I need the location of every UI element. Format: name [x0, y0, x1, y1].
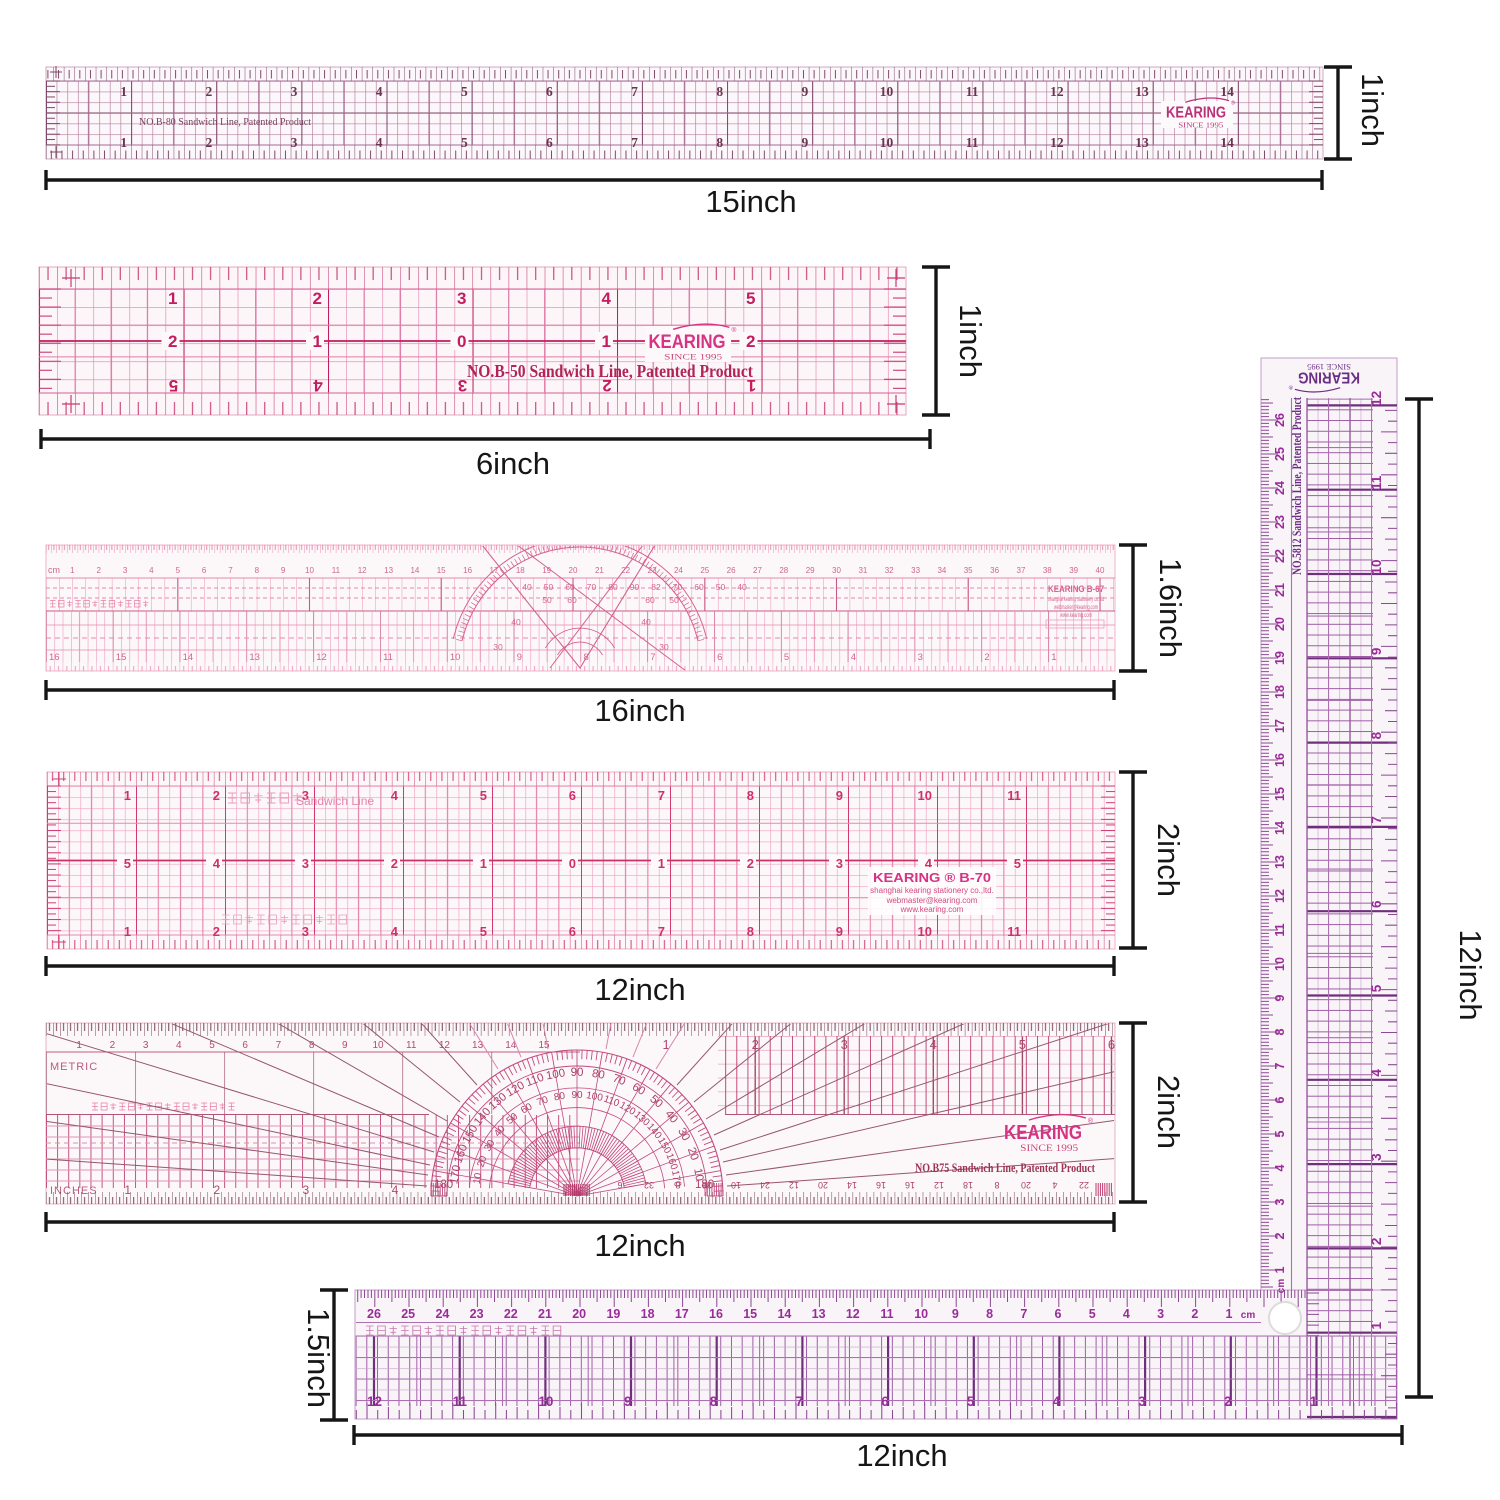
svg-text:10: 10 — [918, 788, 932, 803]
svg-text:90: 90 — [571, 1090, 583, 1101]
svg-text:15inch: 15inch — [705, 184, 796, 219]
svg-text:3: 3 — [302, 856, 309, 871]
svg-text:18: 18 — [963, 1180, 973, 1190]
svg-text:2: 2 — [206, 135, 213, 150]
svg-text:2inch: 2inch — [1151, 823, 1186, 897]
svg-text:6: 6 — [881, 1394, 889, 1409]
svg-text:20: 20 — [572, 1307, 586, 1321]
svg-text:3: 3 — [836, 856, 843, 871]
svg-text:6: 6 — [569, 788, 576, 803]
svg-text:13: 13 — [812, 1307, 826, 1321]
svg-text:40: 40 — [522, 582, 532, 592]
svg-text:1: 1 — [313, 332, 322, 351]
svg-text:12: 12 — [1369, 391, 1384, 406]
svg-text:11: 11 — [406, 1040, 417, 1051]
svg-text:39: 39 — [1069, 566, 1078, 575]
svg-text:25: 25 — [401, 1307, 415, 1321]
svg-text:2: 2 — [1191, 1307, 1198, 1321]
svg-text:4: 4 — [391, 788, 399, 803]
svg-text:40: 40 — [641, 617, 651, 627]
svg-text:10: 10 — [1369, 559, 1384, 574]
svg-text:20: 20 — [569, 566, 578, 575]
svg-text:KEARING ® B-70: KEARING ® B-70 — [873, 870, 991, 885]
svg-text:5: 5 — [1014, 856, 1021, 871]
svg-text:10: 10 — [731, 1180, 741, 1190]
svg-text:8: 8 — [1273, 1028, 1287, 1035]
svg-text:4: 4 — [602, 289, 612, 308]
svg-text:NO.5812 Sandwich Line, Patente: NO.5812 Sandwich Line, Patented Product — [1290, 396, 1304, 575]
svg-text:webmaster@kearing.com: webmaster@kearing.com — [1053, 604, 1098, 611]
svg-text:6inch: 6inch — [476, 446, 550, 481]
svg-text:16: 16 — [876, 1180, 886, 1190]
svg-text:SINCE 1995: SINCE 1995 — [1178, 120, 1223, 129]
svg-text:0: 0 — [457, 332, 466, 351]
svg-text:12: 12 — [1050, 84, 1064, 99]
svg-text:13: 13 — [1135, 84, 1149, 99]
svg-text:60: 60 — [645, 595, 655, 605]
svg-text:28: 28 — [779, 566, 788, 575]
svg-text:3: 3 — [123, 566, 128, 575]
svg-text:9: 9 — [342, 1040, 348, 1051]
svg-text:80: 80 — [591, 1068, 606, 1082]
svg-text:26: 26 — [1273, 413, 1287, 427]
svg-text:3: 3 — [291, 84, 298, 99]
svg-text:6: 6 — [242, 1040, 248, 1051]
svg-text:12inch: 12inch — [1453, 929, 1488, 1020]
svg-text:9: 9 — [517, 652, 522, 663]
svg-text:26: 26 — [727, 566, 736, 575]
svg-text:2: 2 — [746, 332, 755, 351]
svg-text:21: 21 — [538, 1307, 552, 1321]
svg-text:3: 3 — [458, 376, 467, 395]
svg-text:®: ® — [1088, 1117, 1094, 1125]
svg-text:5: 5 — [176, 566, 181, 575]
svg-text:29: 29 — [806, 566, 815, 575]
svg-text:13: 13 — [1135, 135, 1149, 150]
svg-text:2inch: 2inch — [1151, 1075, 1186, 1149]
svg-text:40: 40 — [511, 617, 521, 627]
svg-text:1: 1 — [1369, 1321, 1384, 1329]
svg-text:13: 13 — [249, 652, 260, 663]
svg-text:3: 3 — [1369, 1153, 1384, 1161]
svg-text:5: 5 — [461, 84, 468, 99]
svg-text:9: 9 — [624, 1394, 632, 1409]
svg-text:8: 8 — [994, 1180, 999, 1190]
svg-text:9: 9 — [1369, 648, 1384, 656]
svg-text:7: 7 — [228, 566, 233, 575]
svg-text:14: 14 — [847, 1180, 857, 1190]
svg-text:20: 20 — [1273, 617, 1287, 631]
svg-text:22: 22 — [1273, 549, 1287, 563]
svg-text:9: 9 — [836, 788, 843, 803]
svg-text:30: 30 — [659, 642, 669, 652]
svg-text:1: 1 — [120, 84, 127, 99]
svg-text:2: 2 — [213, 924, 220, 939]
svg-text:3: 3 — [457, 289, 466, 308]
svg-text:10: 10 — [372, 1040, 384, 1051]
svg-text:7: 7 — [1369, 816, 1384, 824]
svg-text:7: 7 — [1020, 1307, 1027, 1321]
svg-text:11: 11 — [383, 652, 393, 663]
svg-text:NO.B-80 Sandwich Line, Patente: NO.B-80 Sandwich Line, Patented Product — [139, 116, 311, 128]
svg-text:6: 6 — [1055, 1307, 1062, 1321]
svg-text:5: 5 — [124, 856, 131, 871]
svg-text:4: 4 — [391, 924, 399, 939]
svg-text:23: 23 — [470, 1307, 484, 1321]
svg-text:1inch: 1inch — [1355, 73, 1390, 147]
svg-text:KEARING B-67: KEARING B-67 — [1048, 584, 1104, 594]
svg-text:10: 10 — [918, 924, 932, 939]
svg-text:cm: cm — [48, 565, 60, 575]
svg-text:5: 5 — [1369, 984, 1384, 992]
svg-text:7: 7 — [650, 652, 655, 663]
svg-text:38: 38 — [1043, 566, 1052, 575]
svg-text:www.kearing.com: www.kearing.com — [900, 905, 964, 914]
svg-text:70: 70 — [587, 582, 597, 592]
svg-text:11: 11 — [453, 1394, 468, 1409]
svg-text:®: ® — [731, 326, 736, 334]
svg-text:60: 60 — [565, 582, 575, 592]
svg-text:60: 60 — [567, 595, 577, 605]
svg-text:7: 7 — [658, 788, 665, 803]
svg-text:16: 16 — [905, 1180, 915, 1190]
svg-text:KEARING: KEARING — [649, 331, 726, 353]
svg-text:16: 16 — [1273, 753, 1287, 767]
svg-text:82: 82 — [651, 582, 661, 592]
svg-text:7: 7 — [631, 135, 638, 150]
svg-text:2: 2 — [110, 1040, 116, 1051]
svg-text:8: 8 — [710, 1394, 718, 1409]
svg-text:6: 6 — [569, 924, 576, 939]
svg-text:4: 4 — [1052, 1180, 1057, 1190]
svg-text:7: 7 — [796, 1394, 804, 1409]
svg-text:7: 7 — [1273, 1062, 1287, 1069]
svg-text:12inch: 12inch — [594, 1228, 685, 1263]
svg-text:50: 50 — [542, 595, 552, 605]
svg-text:15: 15 — [1273, 787, 1287, 801]
svg-text:25: 25 — [1273, 447, 1287, 461]
svg-text:6: 6 — [617, 1180, 622, 1190]
svg-text:8: 8 — [747, 788, 754, 803]
svg-text:4: 4 — [376, 84, 383, 99]
svg-text:11: 11 — [1273, 923, 1287, 936]
svg-text:1: 1 — [124, 788, 131, 803]
svg-text:KEARING: KEARING — [1004, 1122, 1082, 1144]
svg-text:24: 24 — [674, 566, 683, 575]
svg-text:11: 11 — [1369, 475, 1384, 490]
svg-text:3: 3 — [918, 652, 923, 663]
svg-text:30: 30 — [493, 642, 503, 652]
svg-text:12: 12 — [367, 1394, 382, 1409]
svg-text:34: 34 — [937, 566, 946, 575]
svg-text:8: 8 — [716, 135, 723, 150]
svg-text:6: 6 — [202, 566, 207, 575]
svg-text:SINCE 1995: SINCE 1995 — [1020, 1143, 1079, 1153]
svg-text:40: 40 — [1096, 566, 1105, 575]
svg-text:6: 6 — [1273, 1096, 1287, 1103]
svg-text:18: 18 — [641, 1307, 655, 1321]
svg-text:36: 36 — [990, 566, 999, 575]
svg-text:33: 33 — [911, 566, 920, 575]
svg-text:50: 50 — [669, 595, 679, 605]
svg-text:1inch: 1inch — [953, 304, 988, 378]
svg-text:2: 2 — [1369, 1238, 1384, 1246]
svg-text:90: 90 — [571, 1067, 584, 1079]
svg-text:1.5inch: 1.5inch — [301, 1308, 336, 1408]
svg-text:METRIC: METRIC — [50, 1061, 98, 1073]
svg-text:22: 22 — [1079, 1180, 1089, 1190]
svg-text:180: 180 — [434, 1179, 453, 1191]
svg-text:2: 2 — [206, 84, 213, 99]
svg-text:70: 70 — [673, 582, 683, 592]
svg-text:12: 12 — [846, 1307, 860, 1321]
svg-text:Sandwich Line: Sandwich Line — [296, 794, 374, 808]
svg-text:13: 13 — [472, 1040, 484, 1051]
svg-text:16: 16 — [709, 1307, 723, 1321]
svg-text:www.kearing.com: www.kearing.com — [1059, 612, 1092, 619]
svg-text:22: 22 — [504, 1307, 518, 1321]
svg-text:cm: cm — [1241, 1310, 1256, 1321]
svg-text:1: 1 — [662, 1037, 669, 1052]
svg-text:3: 3 — [143, 1040, 149, 1051]
svg-text:NO.B75 Sandwich Line, Patente: NO.B75 Sandwich Line, Patented Product — [915, 1160, 1096, 1175]
svg-text:3: 3 — [1157, 1307, 1164, 1321]
svg-text:6: 6 — [546, 84, 553, 99]
svg-text:32: 32 — [644, 1180, 654, 1190]
svg-text:14: 14 — [777, 1307, 791, 1321]
svg-text:2: 2 — [984, 652, 989, 663]
svg-text:12: 12 — [1273, 889, 1287, 903]
svg-text:2: 2 — [213, 788, 220, 803]
svg-text:37: 37 — [1017, 566, 1026, 575]
svg-text:18: 18 — [1273, 685, 1287, 699]
svg-text:21: 21 — [595, 566, 604, 575]
svg-text:4: 4 — [213, 856, 221, 871]
svg-text:SINCE 1995: SINCE 1995 — [1307, 362, 1351, 372]
svg-text:NO.B-50 Sandwich Line, Patente: NO.B-50 Sandwich Line, Patented Product — [467, 361, 753, 381]
svg-text:1: 1 — [602, 332, 611, 351]
svg-text:2: 2 — [391, 856, 398, 871]
svg-text:12: 12 — [358, 566, 367, 575]
svg-text:19: 19 — [606, 1307, 620, 1321]
svg-text:14: 14 — [410, 566, 419, 575]
svg-text:24: 24 — [435, 1307, 449, 1321]
svg-text:7: 7 — [658, 924, 665, 939]
svg-text:11: 11 — [332, 566, 341, 575]
svg-text:20: 20 — [818, 1180, 828, 1190]
svg-text:12: 12 — [1050, 135, 1064, 150]
svg-text:80: 80 — [608, 582, 618, 592]
svg-text:9: 9 — [281, 566, 286, 575]
svg-text:9: 9 — [801, 135, 808, 150]
svg-text:3: 3 — [1273, 1198, 1287, 1205]
svg-text:11: 11 — [1007, 788, 1021, 803]
svg-text:2: 2 — [96, 566, 101, 575]
svg-text:17: 17 — [1273, 719, 1287, 733]
svg-text:15: 15 — [743, 1307, 757, 1321]
svg-text:16inch: 16inch — [594, 693, 685, 728]
svg-text:10: 10 — [880, 84, 894, 99]
svg-text:14: 14 — [1273, 821, 1287, 835]
svg-text:0: 0 — [569, 856, 576, 871]
svg-text:50: 50 — [544, 582, 554, 592]
svg-text:10: 10 — [538, 1394, 553, 1409]
svg-text:5: 5 — [480, 924, 487, 939]
svg-text:3: 3 — [302, 924, 309, 939]
svg-text:2: 2 — [747, 856, 754, 871]
svg-text:1: 1 — [1226, 1307, 1233, 1321]
svg-text:7: 7 — [631, 84, 638, 99]
svg-text:14: 14 — [183, 652, 194, 663]
svg-text:8: 8 — [716, 84, 723, 99]
svg-text:8: 8 — [986, 1307, 993, 1321]
svg-text:11: 11 — [966, 84, 979, 99]
svg-text:5: 5 — [480, 788, 487, 803]
svg-text:26: 26 — [367, 1307, 381, 1321]
svg-text:60: 60 — [694, 582, 704, 592]
svg-text:14: 14 — [1220, 135, 1234, 150]
svg-text:20: 20 — [1021, 1180, 1031, 1190]
svg-text:24: 24 — [760, 1180, 770, 1190]
svg-text:2: 2 — [168, 332, 177, 351]
svg-text:23: 23 — [1273, 515, 1287, 529]
svg-text:7: 7 — [276, 1040, 282, 1051]
svg-text:12inch: 12inch — [856, 1438, 947, 1473]
svg-text:35: 35 — [964, 566, 973, 575]
svg-text:10: 10 — [305, 566, 314, 575]
svg-text:8: 8 — [675, 1180, 680, 1190]
svg-text:6: 6 — [546, 135, 553, 150]
svg-text:10: 10 — [914, 1307, 928, 1321]
svg-text:18: 18 — [516, 566, 525, 575]
svg-text:1: 1 — [1051, 652, 1056, 663]
svg-text:KEARING: KEARING — [1166, 104, 1226, 122]
svg-text:8: 8 — [255, 566, 260, 575]
svg-text:15: 15 — [116, 652, 127, 663]
svg-text:4: 4 — [313, 376, 323, 395]
svg-text:12: 12 — [789, 1180, 799, 1190]
svg-text:1: 1 — [70, 566, 75, 575]
svg-text:11: 11 — [1007, 924, 1021, 939]
svg-text:9: 9 — [836, 924, 843, 939]
svg-text:4: 4 — [376, 135, 383, 150]
svg-text:2: 2 — [1273, 1232, 1287, 1239]
svg-text:5: 5 — [784, 652, 789, 663]
svg-text:40: 40 — [737, 582, 747, 592]
svg-text:webmaster@kearing.com: webmaster@kearing.com — [886, 896, 978, 905]
svg-text:1.6inch: 1.6inch — [1153, 558, 1188, 658]
svg-text:11: 11 — [880, 1307, 893, 1321]
svg-text:1: 1 — [168, 289, 177, 308]
svg-text:4: 4 — [851, 652, 856, 663]
svg-text:15: 15 — [437, 566, 446, 575]
svg-text:12: 12 — [316, 652, 327, 663]
svg-text:8: 8 — [747, 924, 754, 939]
svg-text:50: 50 — [716, 582, 726, 592]
svg-text:10: 10 — [880, 135, 894, 150]
svg-text:6: 6 — [717, 652, 722, 663]
svg-text:9: 9 — [952, 1307, 959, 1321]
svg-text:14: 14 — [1220, 84, 1234, 99]
svg-text:4: 4 — [1273, 1164, 1287, 1171]
svg-text:16: 16 — [49, 652, 60, 663]
svg-text:9: 9 — [1273, 994, 1287, 1001]
svg-text:shanghai kearing stationery co: shanghai kearing stationery co.,ltd — [1048, 596, 1104, 603]
svg-text:shanghai kearing stationery co: shanghai kearing stationery co.,ltd. — [870, 886, 994, 895]
svg-text:5: 5 — [1089, 1307, 1096, 1321]
svg-text:5: 5 — [169, 376, 178, 395]
svg-text:5: 5 — [1273, 1130, 1287, 1137]
svg-text:24: 24 — [1273, 481, 1287, 495]
svg-text:19: 19 — [1273, 651, 1287, 665]
svg-text:12: 12 — [934, 1180, 944, 1190]
svg-text:1: 1 — [124, 924, 131, 939]
svg-text:31: 31 — [858, 566, 867, 575]
svg-text:16: 16 — [463, 566, 472, 575]
svg-text:13: 13 — [1273, 855, 1287, 869]
svg-text:32: 32 — [885, 566, 894, 575]
svg-text:11: 11 — [966, 135, 979, 150]
svg-text:4: 4 — [149, 566, 154, 575]
svg-text:1: 1 — [120, 135, 127, 150]
svg-text:1: 1 — [76, 1040, 82, 1051]
svg-text:90: 90 — [630, 582, 640, 592]
svg-text:1: 1 — [1273, 1266, 1287, 1273]
svg-text:1: 1 — [658, 856, 665, 871]
svg-text:3: 3 — [291, 135, 298, 150]
svg-text:10: 10 — [450, 652, 461, 663]
svg-text:12inch: 12inch — [594, 972, 685, 1007]
svg-text:27: 27 — [753, 566, 762, 575]
svg-text:17: 17 — [675, 1307, 689, 1321]
svg-text:13: 13 — [384, 566, 393, 575]
svg-text:25: 25 — [700, 566, 709, 575]
svg-text:10: 10 — [1273, 957, 1287, 971]
svg-text:2: 2 — [313, 289, 322, 308]
svg-text:4: 4 — [176, 1040, 182, 1051]
svg-text:5: 5 — [746, 289, 755, 308]
svg-text:15: 15 — [538, 1040, 550, 1051]
svg-text:30: 30 — [832, 566, 841, 575]
svg-text:21: 21 — [1273, 583, 1287, 597]
svg-text:5: 5 — [461, 135, 468, 150]
svg-text:4: 4 — [1123, 1307, 1130, 1321]
svg-text:SINCE 1995: SINCE 1995 — [664, 352, 723, 362]
svg-text:9: 9 — [801, 84, 808, 99]
svg-text:1: 1 — [480, 856, 487, 871]
